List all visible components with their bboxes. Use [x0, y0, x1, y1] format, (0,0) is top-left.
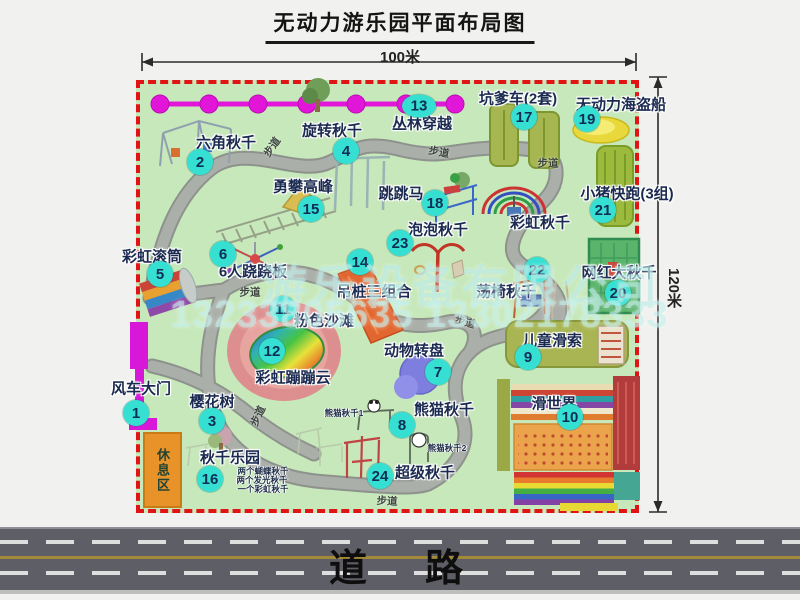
right-dimension-label: 120米	[663, 268, 684, 308]
road-label: 道路	[329, 537, 521, 592]
page-title: 无动力游乐园平面布局图	[266, 7, 535, 44]
top-dimension-label: 100米	[380, 46, 420, 67]
screenshot-root: 无动力游乐园平面布局图 100米 120米	[0, 0, 800, 600]
park-map-area	[136, 80, 639, 513]
road-edge	[0, 590, 800, 594]
rest-area-label: 休息区	[153, 448, 172, 493]
rest-area: 休息区	[143, 432, 182, 508]
road: 道路	[0, 527, 800, 590]
